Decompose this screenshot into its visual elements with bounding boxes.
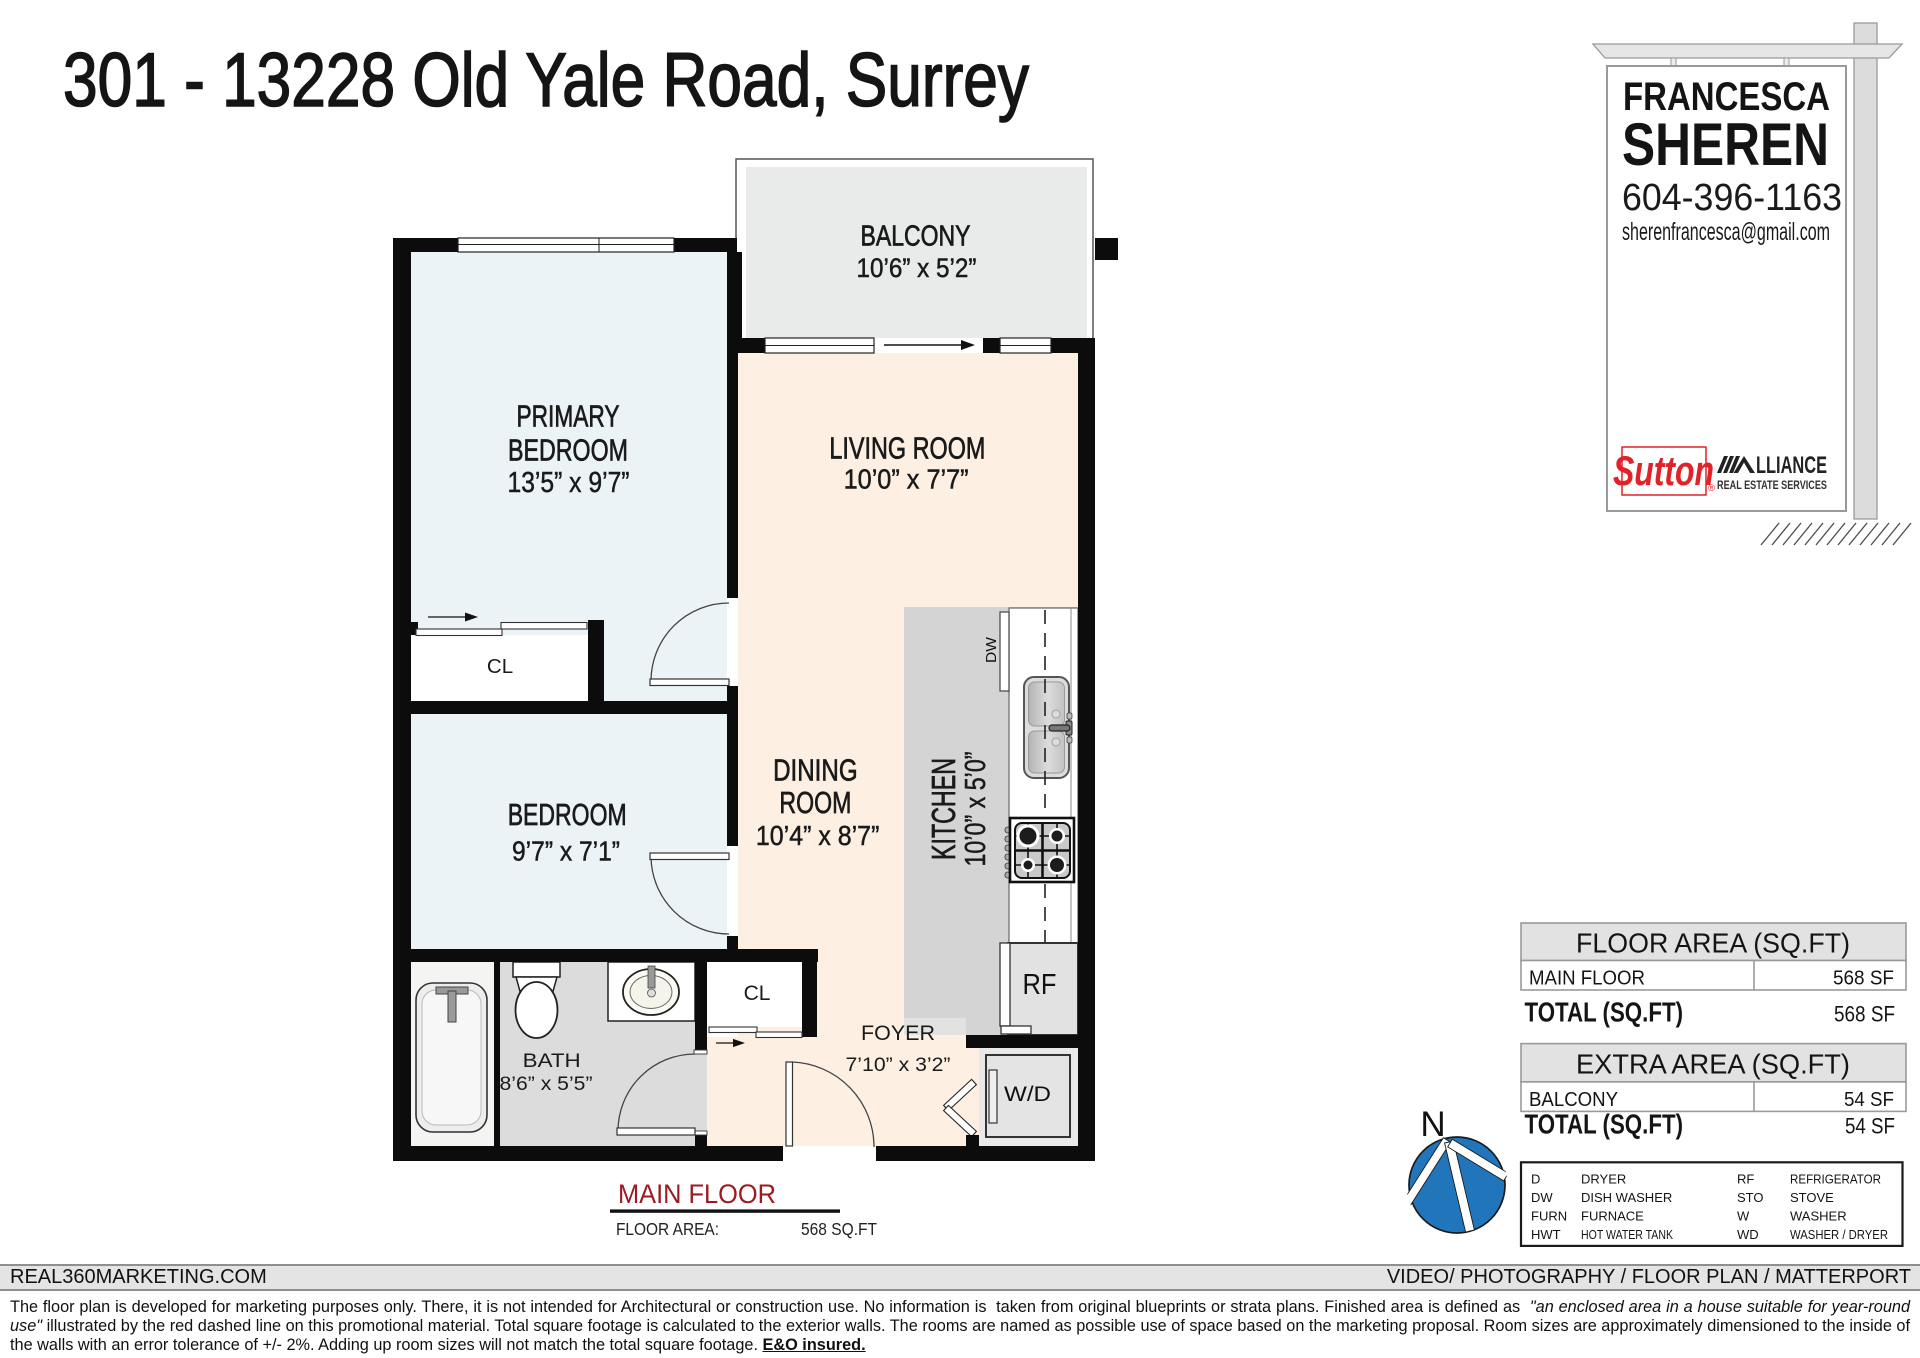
- svg-text:W: W: [1737, 1209, 1750, 1224]
- svg-text:DISH WASHER: DISH WASHER: [1581, 1190, 1672, 1205]
- svg-text:FOYER: FOYER: [861, 1022, 935, 1045]
- svg-text:10’4” x 8’7”: 10’4” x 8’7”: [756, 820, 880, 851]
- svg-text:DW: DW: [984, 637, 1000, 663]
- svg-text:D: D: [1531, 1172, 1540, 1187]
- svg-text:FURNACE: FURNACE: [1581, 1209, 1644, 1224]
- svg-text:WASHER: WASHER: [1790, 1209, 1847, 1224]
- svg-text:REFRIGERATOR: REFRIGERATOR: [1790, 1172, 1881, 1187]
- svg-text:BEDROOM: BEDROOM: [508, 432, 628, 467]
- svg-text:LLIANCE: LLIANCE: [1756, 452, 1827, 479]
- svg-text:LIVING ROOM: LIVING ROOM: [829, 431, 985, 466]
- svg-text:N: N: [1420, 1105, 1445, 1144]
- svg-text:568 SF: 568 SF: [1833, 967, 1894, 990]
- svg-text:KITCHEN: KITCHEN: [925, 758, 962, 860]
- svg-text:568 SQ.FT: 568 SQ.FT: [801, 1219, 877, 1239]
- svg-text:BEDROOM: BEDROOM: [508, 797, 627, 832]
- svg-text:10’6” x 5’2”: 10’6” x 5’2”: [857, 253, 977, 283]
- svg-text:HOT WATER TANK: HOT WATER TANK: [1581, 1227, 1673, 1242]
- svg-text:FLOOR AREA:: FLOOR AREA:: [616, 1219, 719, 1239]
- svg-text:PRIMARY: PRIMARY: [517, 399, 620, 434]
- svg-text:STO: STO: [1737, 1190, 1764, 1205]
- svg-text:DRYER: DRYER: [1581, 1172, 1626, 1187]
- svg-text:W/D: W/D: [1004, 1083, 1051, 1106]
- svg-text:10’0” x 5’0”: 10’0” x 5’0”: [960, 752, 992, 867]
- svg-text:WD: WD: [1737, 1227, 1759, 1242]
- svg-text:TOTAL (SQ.FT): TOTAL (SQ.FT): [1525, 1108, 1684, 1139]
- svg-text:SHEREN: SHEREN: [1622, 111, 1829, 178]
- svg-text:DW: DW: [1531, 1190, 1553, 1205]
- svg-text:7’10” x 3’2”: 7’10” x 3’2”: [846, 1054, 951, 1076]
- svg-text:54 SF: 54 SF: [1845, 1113, 1895, 1138]
- svg-text:TOTAL (SQ.FT): TOTAL (SQ.FT): [1525, 997, 1684, 1028]
- svg-text:FLOOR AREA (SQ.FT): FLOOR AREA (SQ.FT): [1576, 928, 1850, 959]
- svg-text:®: ®: [1708, 483, 1715, 494]
- svg-text:ROOM: ROOM: [779, 785, 851, 820]
- svg-text:BALCONY: BALCONY: [861, 221, 971, 253]
- svg-text:MAIN FLOOR: MAIN FLOOR: [1529, 967, 1645, 990]
- svg-text:CL: CL: [744, 982, 771, 1005]
- svg-text:sherenfrancesca@gmail.com: sherenfrancesca@gmail.com: [1622, 218, 1830, 246]
- svg-text:WASHER / DRYER: WASHER / DRYER: [1790, 1227, 1888, 1242]
- svg-text:RF: RF: [1023, 969, 1057, 1001]
- svg-text:BATH: BATH: [523, 1050, 581, 1072]
- svg-text:STOVE: STOVE: [1790, 1190, 1834, 1205]
- svg-text:RF: RF: [1737, 1172, 1754, 1187]
- svg-text:Sutton: Sutton: [1613, 447, 1714, 494]
- svg-text:HWT: HWT: [1531, 1227, 1561, 1242]
- svg-text:FURN: FURN: [1531, 1209, 1567, 1224]
- svg-text:CL: CL: [487, 655, 513, 678]
- svg-text:REAL ESTATE SERVICES: REAL ESTATE SERVICES: [1717, 480, 1827, 492]
- svg-text:568 SF: 568 SF: [1834, 1002, 1895, 1027]
- svg-text:9’7” x 7’1”: 9’7” x 7’1”: [512, 836, 620, 867]
- svg-text:10’0” x 7’7”: 10’0” x 7’7”: [844, 464, 969, 495]
- svg-text:MAIN FLOOR: MAIN FLOOR: [618, 1179, 776, 1209]
- svg-text:604-396-1163: 604-396-1163: [1622, 177, 1842, 219]
- svg-text:8’6” x 5’5”: 8’6” x 5’5”: [500, 1073, 593, 1095]
- svg-text:13’5” x 9’7”: 13’5” x 9’7”: [508, 467, 630, 499]
- svg-text:54 SF: 54 SF: [1844, 1088, 1894, 1111]
- svg-text:EXTRA AREA (SQ.FT): EXTRA AREA (SQ.FT): [1576, 1049, 1850, 1080]
- svg-text:DINING: DINING: [773, 753, 858, 788]
